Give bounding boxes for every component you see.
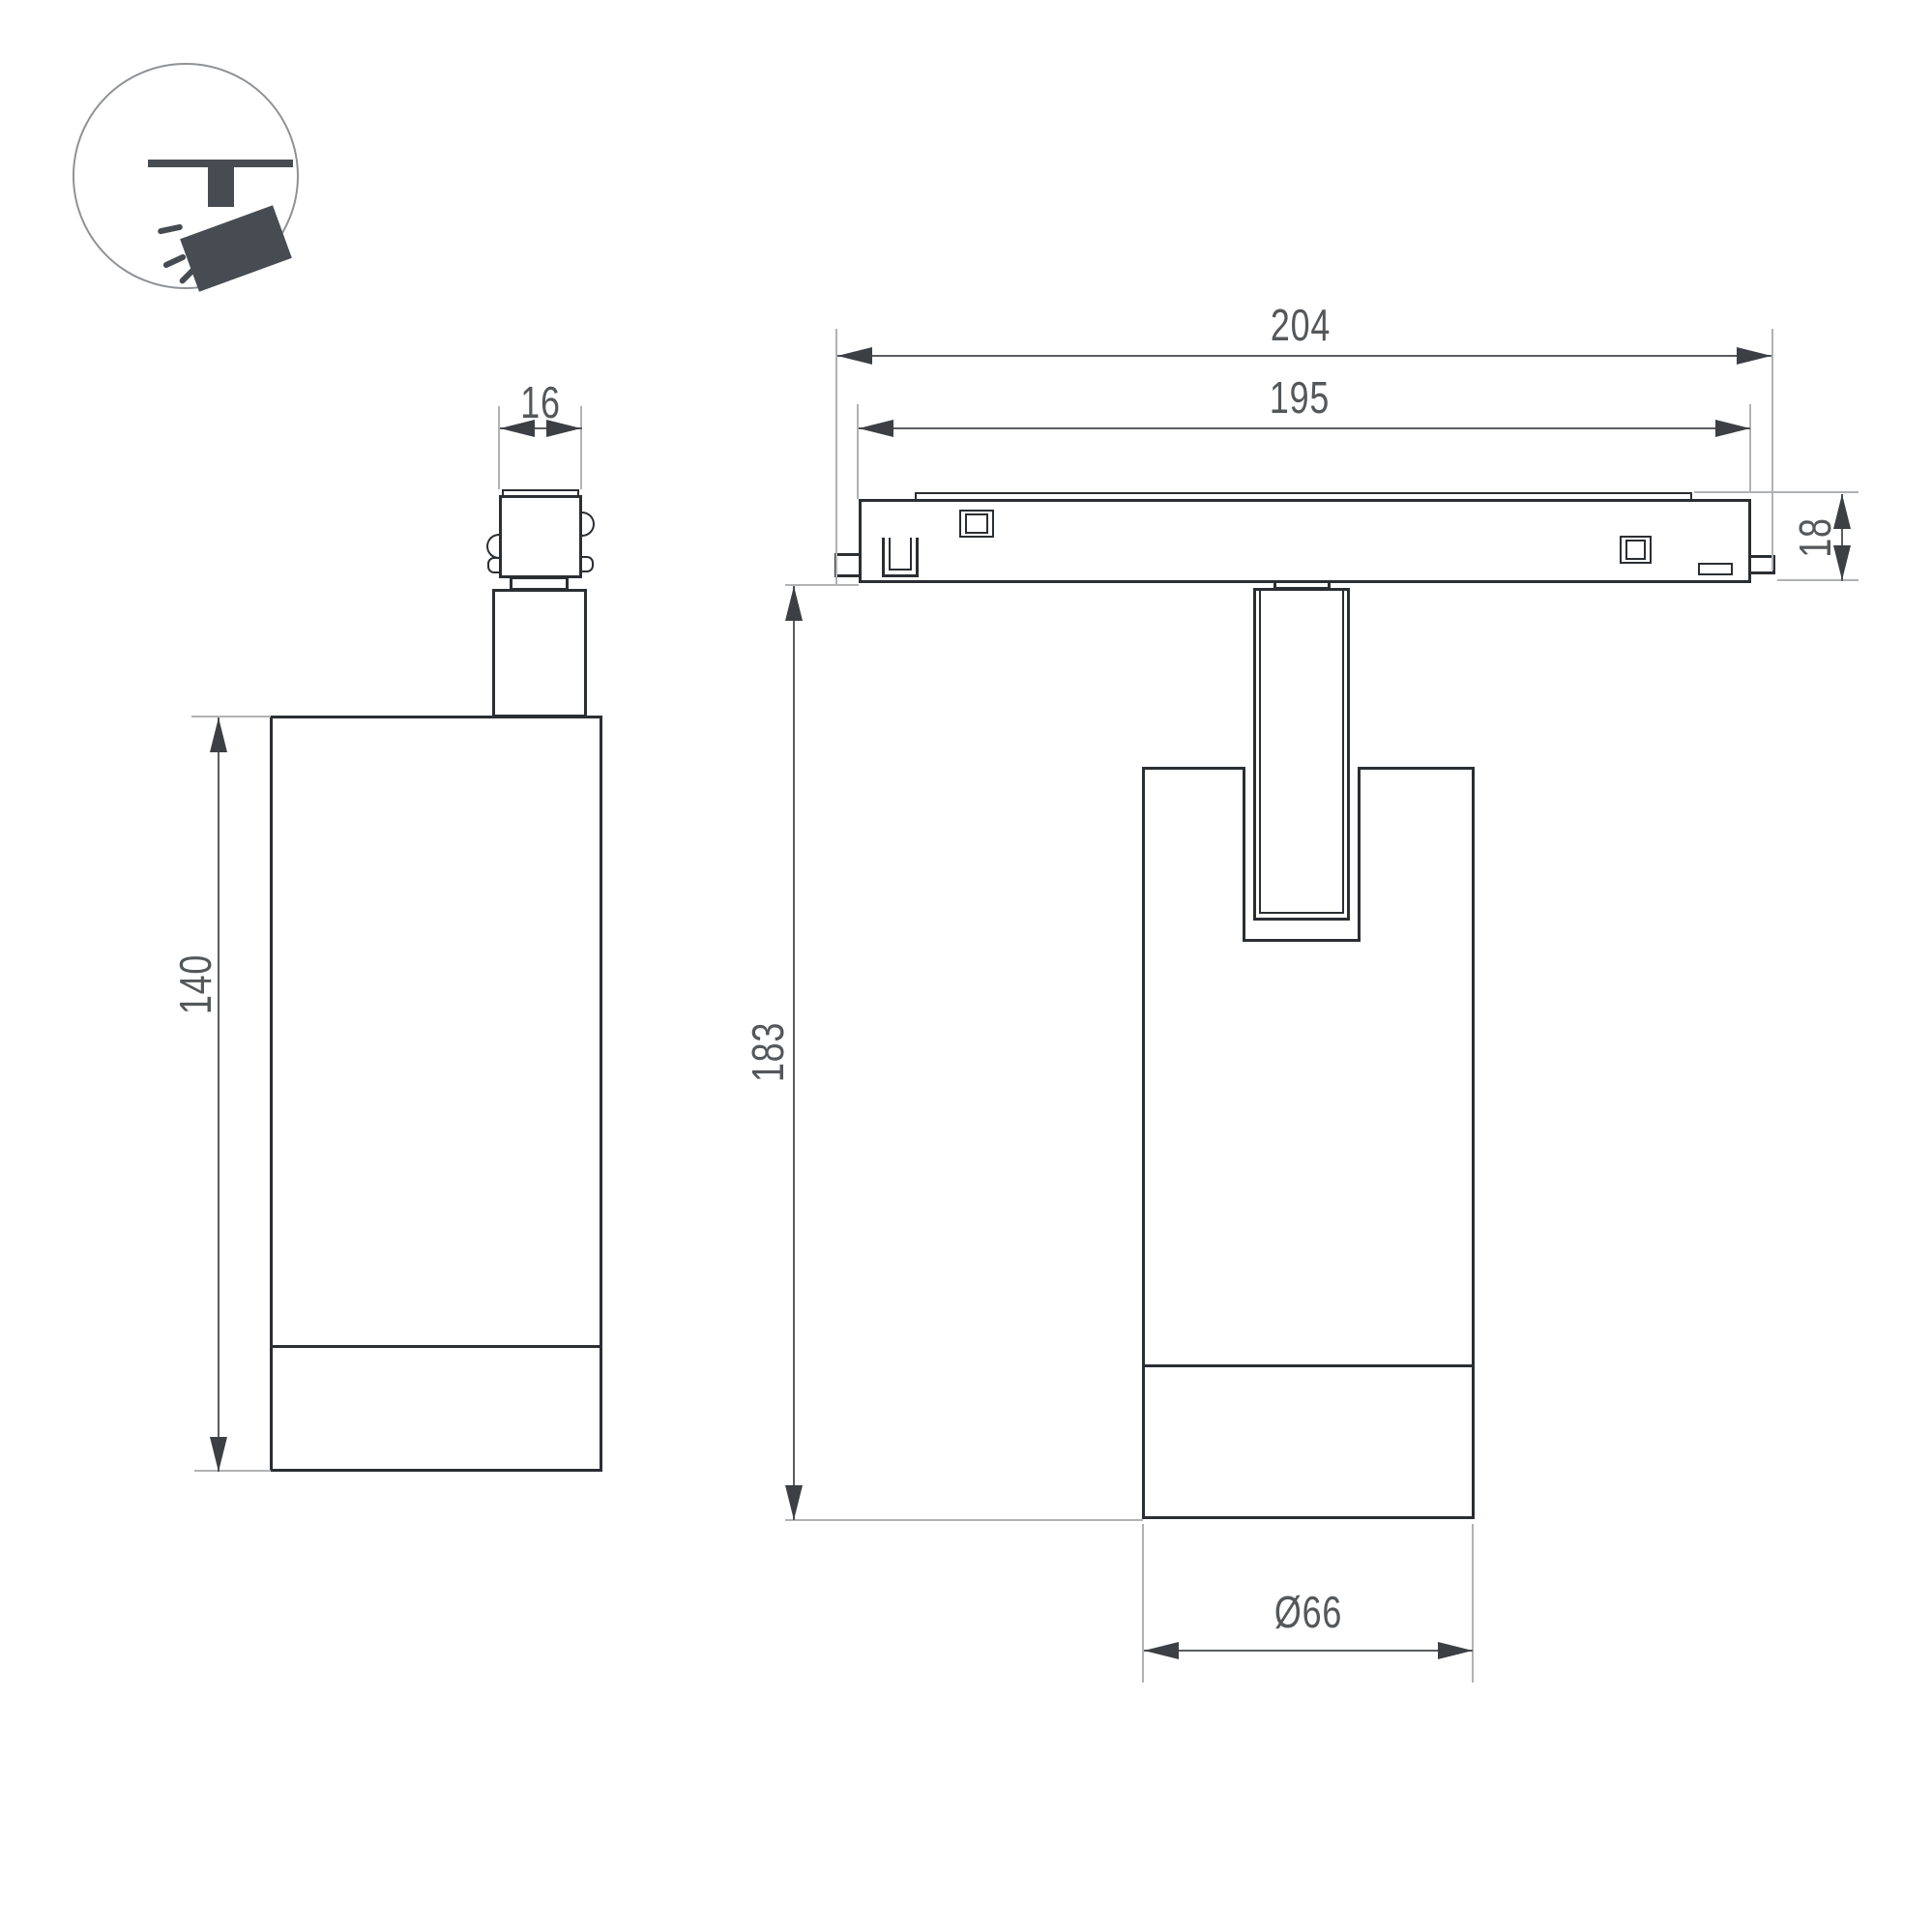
dim-140-label: 140 bbox=[172, 924, 219, 1045]
body-separator-line bbox=[273, 1345, 600, 1348]
track-clip-inner bbox=[889, 538, 912, 571]
arrowhead bbox=[785, 586, 803, 621]
dim-66-label: Ø66 bbox=[1248, 1589, 1369, 1635]
dimension-drawing: 16 140 204 bbox=[0, 0, 1932, 1932]
stem bbox=[492, 589, 587, 717]
body-top-edge bbox=[1358, 767, 1475, 770]
connector-side-bump-right bbox=[581, 512, 595, 537]
extension-line bbox=[857, 404, 859, 499]
dim-140-line bbox=[218, 717, 220, 1472]
arrowhead bbox=[1737, 347, 1771, 365]
extension-line bbox=[1749, 404, 1751, 493]
arrowhead bbox=[210, 1437, 227, 1472]
dim-183-line bbox=[793, 586, 795, 1520]
arrowhead bbox=[1144, 1642, 1179, 1659]
track-connector bbox=[499, 495, 582, 578]
lamp-body bbox=[270, 716, 602, 1472]
dim-183-label: 183 bbox=[745, 992, 791, 1113]
dim-18-label: 18 bbox=[1792, 478, 1838, 599]
arrowhead bbox=[1438, 1642, 1473, 1659]
extension-line bbox=[835, 329, 837, 585]
dim-16-label: 16 bbox=[481, 379, 601, 425]
body-top-edge bbox=[1142, 767, 1245, 770]
dim-204-line bbox=[837, 355, 1771, 357]
track-spotlight-icon bbox=[0, 0, 329, 329]
extension-line bbox=[191, 716, 271, 717]
dim-195-label: 195 bbox=[1240, 374, 1361, 421]
track-slot bbox=[1698, 563, 1733, 575]
extension-line bbox=[1771, 329, 1773, 571]
lamp-body bbox=[1142, 767, 1475, 1519]
track-window-inner bbox=[965, 513, 988, 534]
arrowhead bbox=[785, 1485, 803, 1520]
arrowhead bbox=[210, 717, 227, 752]
extension-line bbox=[785, 1519, 1143, 1521]
connector-side-foot-right bbox=[581, 556, 594, 572]
body-separator-line bbox=[1145, 1364, 1472, 1367]
track-end-tab-left bbox=[834, 553, 862, 577]
dim-66-line bbox=[1144, 1650, 1473, 1652]
arrowhead bbox=[1715, 420, 1750, 437]
icon-stem bbox=[208, 166, 234, 207]
arrowhead bbox=[837, 347, 872, 365]
dim-204-label: 204 bbox=[1241, 302, 1361, 348]
extension-line bbox=[194, 1470, 271, 1472]
arrowhead bbox=[859, 420, 893, 437]
connector-side-bump-left bbox=[486, 534, 500, 559]
dim-195-line bbox=[859, 427, 1750, 429]
track-window-inner bbox=[1625, 540, 1646, 560]
